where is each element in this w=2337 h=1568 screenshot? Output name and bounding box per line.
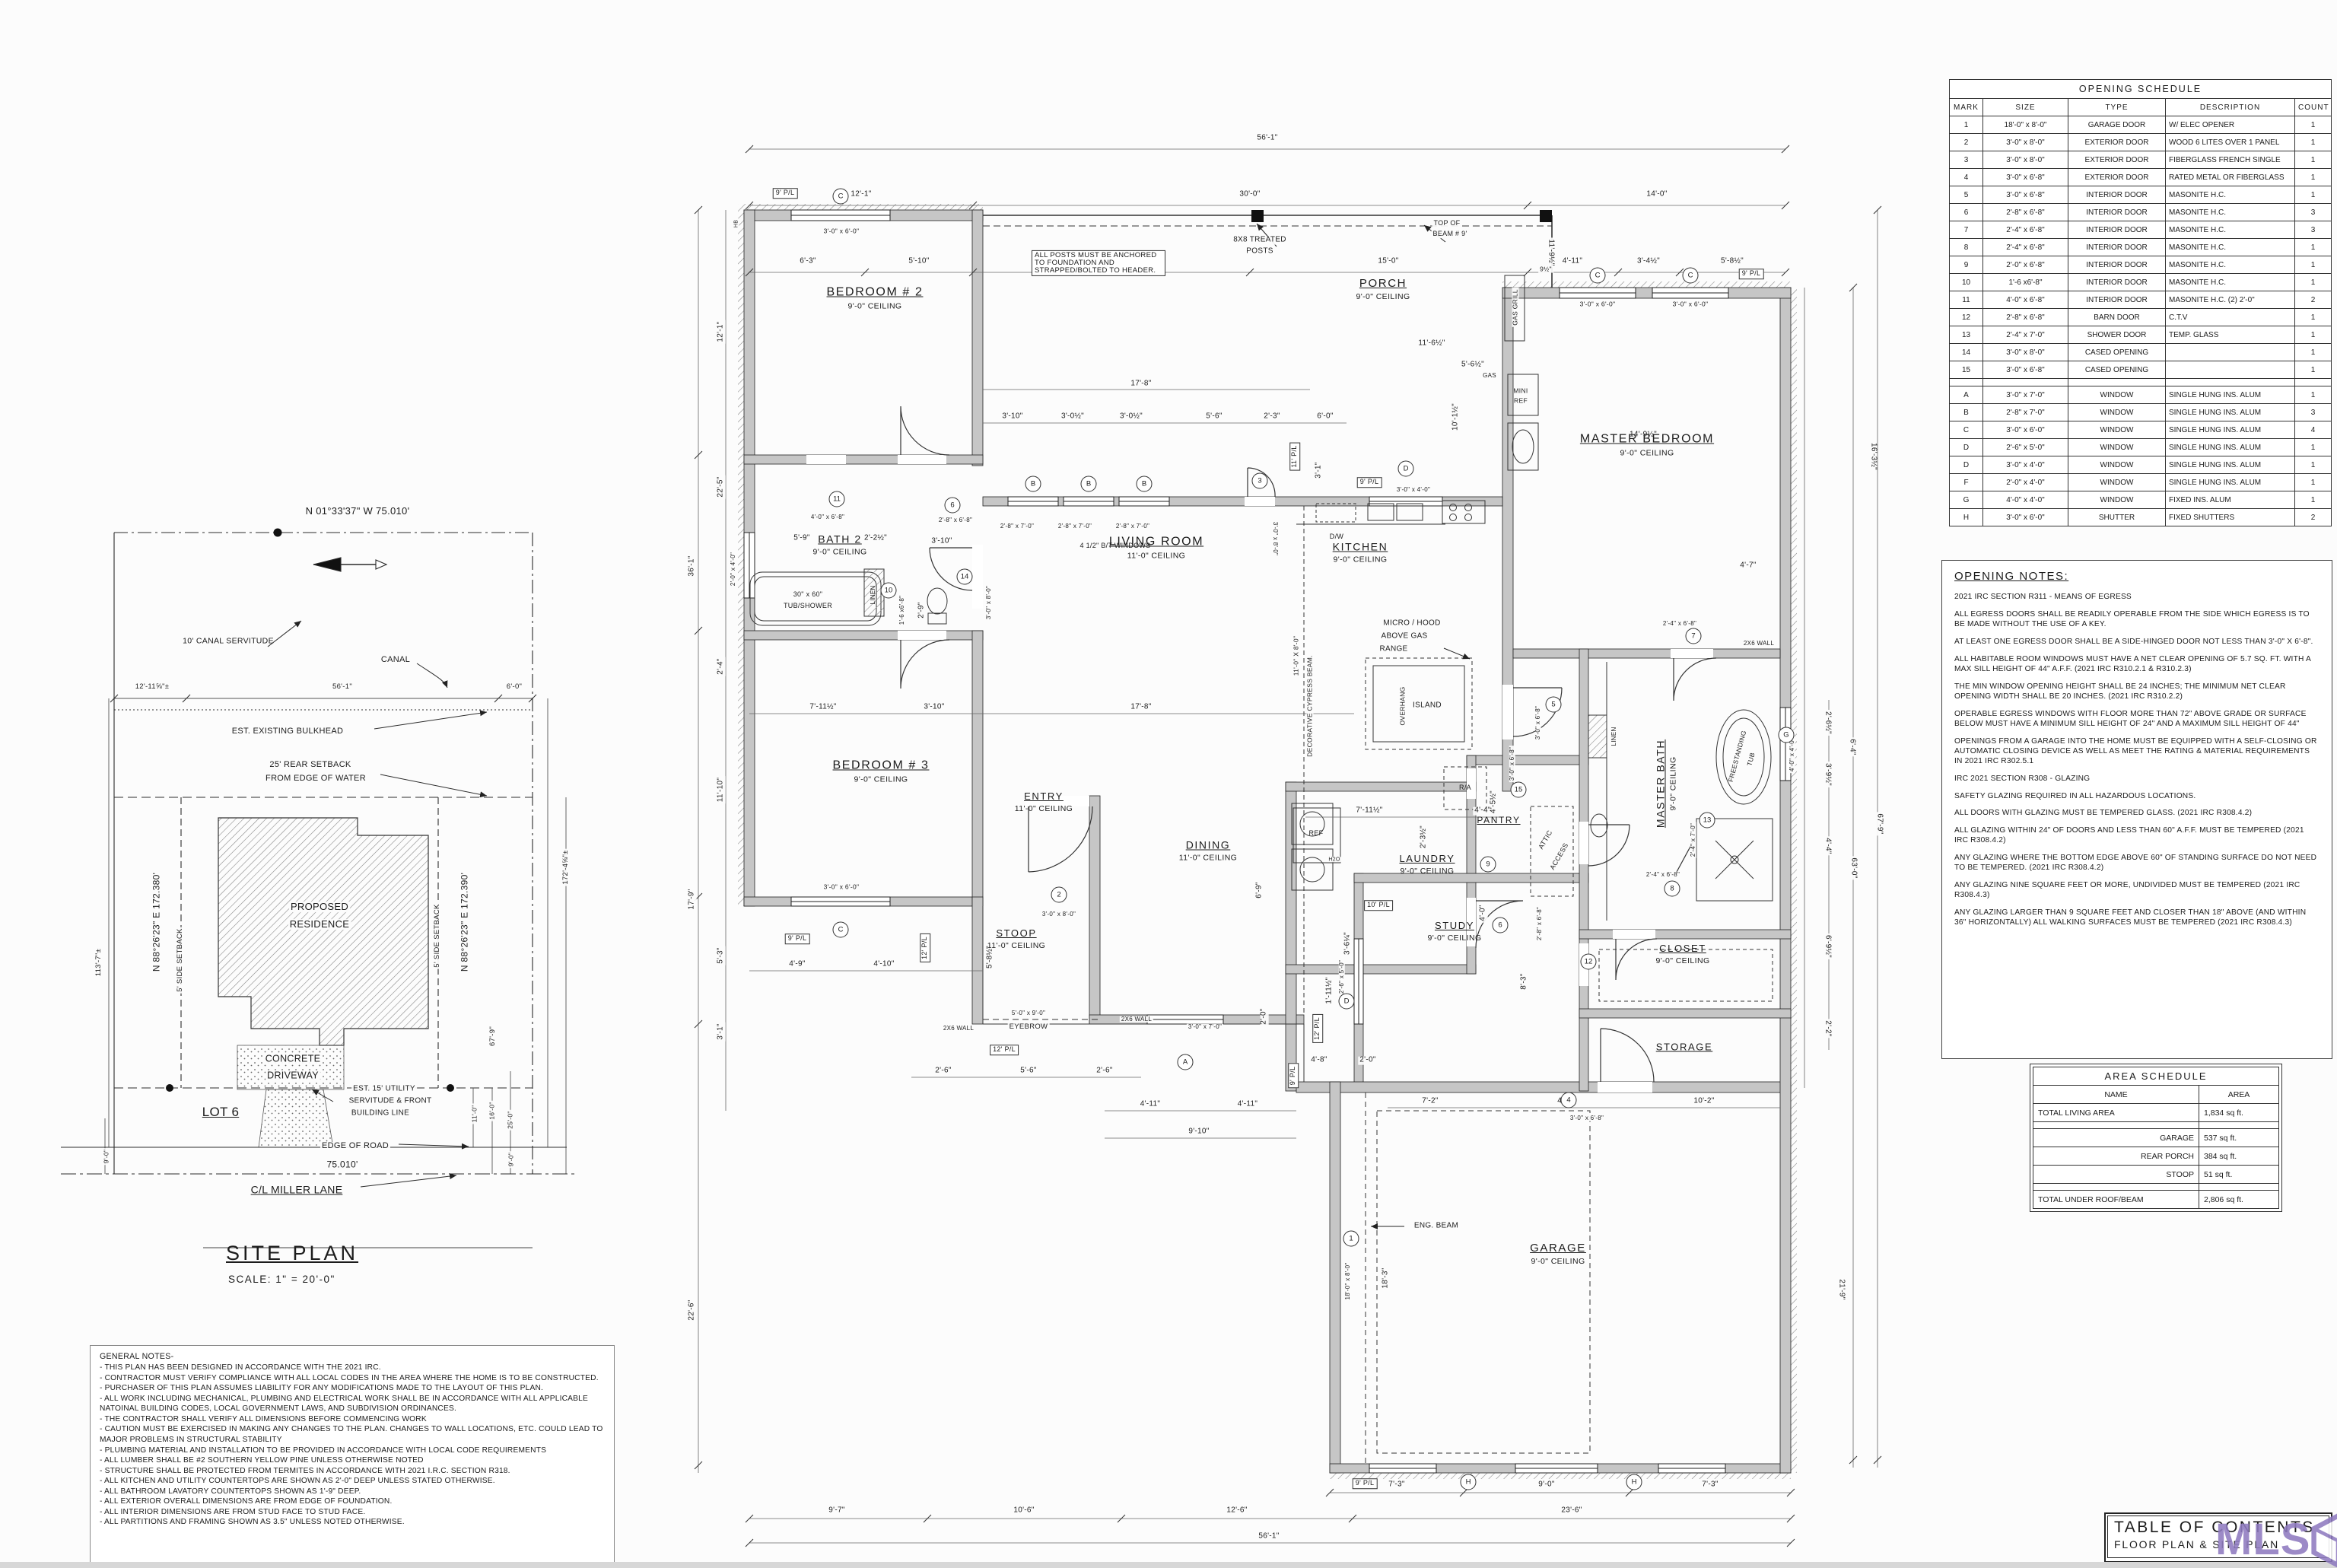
cell-area: 2,806 sq ft. bbox=[2199, 1191, 2279, 1209]
table-row: REAR PORCH384 sq ft. bbox=[2033, 1147, 2279, 1166]
cell-mark: D bbox=[1950, 456, 1983, 474]
general-note: - ALL INTERIOR DIMENSIONS ARE FROM STUD … bbox=[100, 1507, 605, 1518]
table-row: 53'-0" x 6'-8"INTERIOR DOORMASONITE H.C.… bbox=[1950, 186, 2332, 204]
mls-watermark-text: MLS bbox=[2215, 1518, 2310, 1562]
cell-type: CASED OPENING bbox=[2068, 361, 2166, 379]
opening-note: ALL DOORS WITH GLAZING MUST BE TEMPERED … bbox=[1954, 808, 2320, 818]
cell-mark: 8 bbox=[1950, 239, 1983, 256]
opening-notes-body: 2021 IRC SECTION R311 - MEANS OF EGRESSA… bbox=[1954, 592, 2320, 928]
table-row bbox=[1950, 379, 2332, 386]
cell-mark: 12 bbox=[1950, 309, 1983, 326]
opening-note: 2021 IRC SECTION R311 - MEANS OF EGRESS bbox=[1954, 592, 2320, 602]
cell-count: 1 bbox=[2295, 309, 2332, 326]
table-row: 33'-0" x 8'-0"EXTERIOR DOORFIBERGLASS FR… bbox=[1950, 151, 2332, 169]
cell-count: 1 bbox=[2295, 134, 2332, 151]
cell-area: 51 sq ft. bbox=[2199, 1166, 2279, 1184]
table-row: D2'-6" x 5'-0"WINDOWSINGLE HUNG INS. ALU… bbox=[1950, 439, 2332, 456]
cell-mark: F bbox=[1950, 474, 1983, 491]
cell-desc: SINGLE HUNG INS. ALUM bbox=[2166, 474, 2295, 491]
table-row: GARAGE537 sq ft. bbox=[2033, 1129, 2279, 1147]
cell-mark: 13 bbox=[1950, 326, 1983, 344]
opening-note: ALL EGRESS DOORS SHALL BE READILY OPERAB… bbox=[1954, 609, 2320, 630]
cell-size: 3'-0" x 6'-8" bbox=[1983, 169, 2068, 186]
cell-type: CASED OPENING bbox=[2068, 344, 2166, 361]
cell-type: INTERIOR DOOR bbox=[2068, 186, 2166, 204]
cell-size: 2'-8" x 6'-8" bbox=[1983, 204, 2068, 221]
cell-name: TOTAL UNDER ROOF/BEAM bbox=[2033, 1191, 2199, 1209]
cell-desc: SINGLE HUNG INS. ALUM bbox=[2166, 421, 2295, 439]
general-note: - ALL LUMBER SHALL BE #2 SOUTHERN YELLOW… bbox=[100, 1455, 605, 1466]
cell-count: 1 bbox=[2295, 491, 2332, 509]
cell-mark: A bbox=[1950, 386, 1983, 404]
table-row: 132'-4" x 7'-0"SHOWER DOORTEMP. GLASS1 bbox=[1950, 326, 2332, 344]
cell-desc: WOOD 6 LITES OVER 1 PANEL bbox=[2166, 134, 2295, 151]
cell-type: WINDOW bbox=[2068, 439, 2166, 456]
opening-schedule-table: OPENING SCHEDULE MARK SIZE TYPE DESCRIPT… bbox=[1949, 79, 2332, 526]
opening-schedule-title: OPENING SCHEDULE bbox=[1950, 80, 2332, 99]
cell-count: 3 bbox=[2295, 221, 2332, 239]
col-size: SIZE bbox=[1983, 99, 2068, 116]
cell-type: INTERIOR DOOR bbox=[2068, 204, 2166, 221]
table-row bbox=[2033, 1122, 2279, 1129]
cell-size: 4'-0" x 4'-0" bbox=[1983, 491, 2068, 509]
area-schedule-title: AREA SCHEDULE bbox=[2033, 1067, 2279, 1086]
cell-size bbox=[1983, 379, 2068, 386]
cell-name: REAR PORCH bbox=[2033, 1147, 2199, 1166]
cell-count: 3 bbox=[2295, 404, 2332, 421]
cell-desc: SINGLE HUNG INS. ALUM bbox=[2166, 404, 2295, 421]
cell-mark: 9 bbox=[1950, 256, 1983, 274]
cell-size: 3'-0" x 8'-0" bbox=[1983, 134, 2068, 151]
cell-size: 2'-4" x 6'-8" bbox=[1983, 239, 2068, 256]
cell-mark: 10 bbox=[1950, 274, 1983, 291]
cell-name: TOTAL LIVING AREA bbox=[2033, 1104, 2199, 1122]
cell-mark: H bbox=[1950, 509, 1983, 526]
cell-count: 1 bbox=[2295, 151, 2332, 169]
table-row: 114'-0" x 6'-8"INTERIOR DOORMASONITE H.C… bbox=[1950, 291, 2332, 309]
site-plan-title: SITE PLAN bbox=[226, 1242, 358, 1265]
cell-type: WINDOW bbox=[2068, 491, 2166, 509]
table-row: 153'-0" x 6'-8"CASED OPENING1 bbox=[1950, 361, 2332, 379]
col-type: TYPE bbox=[2068, 99, 2166, 116]
table-row: 101'-6 x6'-8"INTERIOR DOORMASONITE H.C.1 bbox=[1950, 274, 2332, 291]
cell-count: 3 bbox=[2295, 204, 2332, 221]
cell-count: 1 bbox=[2295, 169, 2332, 186]
col-area: AREA bbox=[2199, 1086, 2279, 1104]
cell-desc: MASONITE H.C. (2) 2'-0" bbox=[2166, 291, 2295, 309]
cell-area: 384 sq ft. bbox=[2199, 1147, 2279, 1166]
cell-desc: FIXED INS. ALUM bbox=[2166, 491, 2295, 509]
cell-type: SHUTTER bbox=[2068, 509, 2166, 526]
general-note: - THIS PLAN HAS BEEN DESIGNED IN ACCORDA… bbox=[100, 1363, 605, 1373]
table-row: H3'-0" x 6'-0"SHUTTERFIXED SHUTTERS2 bbox=[1950, 509, 2332, 526]
table-row: D3'-0" x 4'-0"WINDOWSINGLE HUNG INS. ALU… bbox=[1950, 456, 2332, 474]
cell-size: 2'-0" x 4'-0" bbox=[1983, 474, 2068, 491]
general-note: - PURCHASER OF THIS PLAN ASSUMES LIABILI… bbox=[100, 1383, 605, 1394]
general-notes: GENERAL NOTES- - THIS PLAN HAS BEEN DESI… bbox=[90, 1345, 615, 1564]
table-row: 122'-8" x 6'-8"BARN DOORC.T.V1 bbox=[1950, 309, 2332, 326]
cell-area: 537 sq ft. bbox=[2199, 1129, 2279, 1147]
fixtures bbox=[750, 275, 1773, 1464]
table-row: 92'-0" x 6'-8"INTERIOR DOORMASONITE H.C.… bbox=[1950, 256, 2332, 274]
col-description: DESCRIPTION bbox=[2166, 99, 2295, 116]
cell-mark: 3 bbox=[1950, 151, 1983, 169]
mls-watermark-logo: MLS bbox=[2215, 1512, 2337, 1567]
cell-size: 3'-0" x 8'-0" bbox=[1983, 151, 2068, 169]
cell-desc bbox=[2166, 379, 2295, 386]
col-name: NAME bbox=[2033, 1086, 2199, 1104]
cell-type: WINDOW bbox=[2068, 404, 2166, 421]
cell-type: WINDOW bbox=[2068, 474, 2166, 491]
table-row: G4'-0" x 4'-0"WINDOWFIXED INS. ALUM1 bbox=[1950, 491, 2332, 509]
cell-type: INTERIOR DOOR bbox=[2068, 221, 2166, 239]
cell-size: 3'-0" x 6'-8" bbox=[1983, 361, 2068, 379]
cell-desc: MASONITE H.C. bbox=[2166, 221, 2295, 239]
cell-desc: MASONITE H.C. bbox=[2166, 256, 2295, 274]
cell-area bbox=[2199, 1122, 2279, 1129]
cell-desc: MASONITE H.C. bbox=[2166, 186, 2295, 204]
cell-area bbox=[2199, 1184, 2279, 1191]
sheet: { "opening_schedule": { "title": "OPENIN… bbox=[0, 0, 2337, 1568]
cell-count: 1 bbox=[2295, 239, 2332, 256]
general-note: - ALL EXTERIOR OVERALL DIMENSIONS ARE FR… bbox=[100, 1496, 605, 1507]
cell-type: GARAGE DOOR bbox=[2068, 116, 2166, 134]
cell-desc: FIXED SHUTTERS bbox=[2166, 509, 2295, 526]
cell-name: GARAGE bbox=[2033, 1129, 2199, 1147]
table-row: 143'-0" x 8'-0"CASED OPENING1 bbox=[1950, 344, 2332, 361]
cell-type: WINDOW bbox=[2068, 386, 2166, 404]
cell-count: 1 bbox=[2295, 256, 2332, 274]
area-schedule-header-row: NAME AREA bbox=[2033, 1086, 2279, 1104]
general-note: - PLUMBING MATERIAL AND INSTALLATION TO … bbox=[100, 1446, 605, 1456]
cell-mark: G bbox=[1950, 491, 1983, 509]
area-schedule: AREA SCHEDULE NAME AREA TOTAL LIVING ARE… bbox=[2030, 1064, 2282, 1212]
cell-desc: TEMP. GLASS bbox=[2166, 326, 2295, 344]
cell-mark bbox=[1950, 379, 1983, 386]
table-row: 43'-0" x 6'-8"EXTERIOR DOORRATED METAL O… bbox=[1950, 169, 2332, 186]
cell-type: INTERIOR DOOR bbox=[2068, 256, 2166, 274]
cell-count: 1 bbox=[2295, 116, 2332, 134]
general-notes-title: GENERAL NOTES- bbox=[100, 1352, 605, 1361]
cell-size: 2'-0" x 6'-8" bbox=[1983, 256, 2068, 274]
opening-note: THE MIN WINDOW OPENING HEIGHT SHALL BE 2… bbox=[1954, 682, 2320, 702]
cell-desc: SINGLE HUNG INS. ALUM bbox=[2166, 439, 2295, 456]
general-note: - ALL WORK INCLUDING MECHANICAL, PLUMBIN… bbox=[100, 1394, 605, 1414]
table-row: B2'-8" x 7'-0"WINDOWSINGLE HUNG INS. ALU… bbox=[1950, 404, 2332, 421]
cell-size: 2'-6" x 5'-0" bbox=[1983, 439, 2068, 456]
cell-name bbox=[2033, 1122, 2199, 1129]
cell-mark: B bbox=[1950, 404, 1983, 421]
cell-mark: 7 bbox=[1950, 221, 1983, 239]
opening-note: ALL HABITABLE ROOM WINDOWS MUST HAVE A N… bbox=[1954, 654, 2320, 675]
cell-mark: 1 bbox=[1950, 116, 1983, 134]
cell-type: WINDOW bbox=[2068, 456, 2166, 474]
cell-type: EXTERIOR DOOR bbox=[2068, 169, 2166, 186]
cell-size: 2'-8" x 6'-8" bbox=[1983, 309, 2068, 326]
cell-desc: W/ ELEC OPENER bbox=[2166, 116, 2295, 134]
cell-size: 3'-0" x 6'-0" bbox=[1983, 421, 2068, 439]
cell-count: 1 bbox=[2295, 474, 2332, 491]
cell-desc: RATED METAL OR FIBERGLASS bbox=[2166, 169, 2295, 186]
cell-desc: FIBERGLASS FRENCH SINGLE bbox=[2166, 151, 2295, 169]
cell-type bbox=[2068, 379, 2166, 386]
cell-size: 18'-0" x 8'-0" bbox=[1983, 116, 2068, 134]
table-row: F2'-0" x 4'-0"WINDOWSINGLE HUNG INS. ALU… bbox=[1950, 474, 2332, 491]
north-arrow-icon bbox=[313, 558, 386, 571]
opening-note: OPERABLE EGRESS WINDOWS WITH FLOOR MORE … bbox=[1954, 709, 2320, 730]
cell-count bbox=[2295, 379, 2332, 386]
cell-desc: SINGLE HUNG INS. ALUM bbox=[2166, 456, 2295, 474]
table-row: C3'-0" x 6'-0"WINDOWSINGLE HUNG INS. ALU… bbox=[1950, 421, 2332, 439]
cell-count: 1 bbox=[2295, 326, 2332, 344]
cell-desc: C.T.V bbox=[2166, 309, 2295, 326]
cell-size: 3'-0" x 6'-8" bbox=[1983, 186, 2068, 204]
cell-count: 1 bbox=[2295, 456, 2332, 474]
general-note: - CAUTION MUST BE EXERCISED IN MAKING AN… bbox=[100, 1424, 605, 1445]
table-row: 82'-4" x 6'-8"INTERIOR DOORMASONITE H.C.… bbox=[1950, 239, 2332, 256]
opening-schedule-header-row: MARK SIZE TYPE DESCRIPTION COUNT bbox=[1950, 99, 2332, 116]
table-row: 72'-4" x 6'-8"INTERIOR DOORMASONITE H.C.… bbox=[1950, 221, 2332, 239]
general-note: - ALL PARTITIONS AND FRAMING SHOWN AS 3.… bbox=[100, 1517, 605, 1528]
cell-mark: 5 bbox=[1950, 186, 1983, 204]
general-note: - STRUCTURE SHALL BE PROTECTED FROM TERM… bbox=[100, 1466, 605, 1477]
cell-desc: MASONITE H.C. bbox=[2166, 274, 2295, 291]
cell-count: 2 bbox=[2295, 291, 2332, 309]
opening-notes: OPENING NOTES: 2021 IRC SECTION R311 - M… bbox=[1941, 560, 2332, 1059]
opening-note: ANY GLAZING NINE SQUARE FEET OR MORE, UN… bbox=[1954, 880, 2320, 901]
cell-size: 3'-0" x 6'-0" bbox=[1983, 509, 2068, 526]
cell-count: 1 bbox=[2295, 274, 2332, 291]
site-plan-scale: SCALE: 1" = 20'-0" bbox=[228, 1274, 335, 1285]
cell-mark: 14 bbox=[1950, 344, 1983, 361]
cell-type: INTERIOR DOOR bbox=[2068, 239, 2166, 256]
mls-cube-icon bbox=[2310, 1512, 2337, 1567]
cell-count: 1 bbox=[2295, 186, 2332, 204]
opening-note: ANY GLAZING WHERE THE BOTTOM EDGE ABOVE … bbox=[1954, 853, 2320, 873]
cell-mark: 11 bbox=[1950, 291, 1983, 309]
site-plan-geometry bbox=[61, 529, 578, 1248]
door-openings bbox=[806, 455, 1713, 1093]
col-mark: MARK bbox=[1950, 99, 1983, 116]
cell-desc: SINGLE HUNG INS. ALUM bbox=[2166, 386, 2295, 404]
general-note: - CONTRACTOR MUST VERIFY COMPLIANCE WITH… bbox=[100, 1373, 605, 1384]
opening-note: ANY GLAZING LARGER THAN 9 SQUARE FEET AN… bbox=[1954, 908, 2320, 928]
general-notes-body: - THIS PLAN HAS BEEN DESIGNED IN ACCORDA… bbox=[100, 1363, 605, 1528]
windows bbox=[744, 210, 1791, 1473]
floor-plan-walls bbox=[738, 204, 1797, 1479]
general-note: - ALL BATHROOM LAVATORY COUNTERTOPS SHOW… bbox=[100, 1487, 605, 1497]
cell-desc bbox=[2166, 361, 2295, 379]
cell-type: EXTERIOR DOOR bbox=[2068, 151, 2166, 169]
cell-size: 3'-0" x 8'-0" bbox=[1983, 344, 2068, 361]
table-row: TOTAL UNDER ROOF/BEAM2,806 sq ft. bbox=[2033, 1191, 2279, 1209]
cell-type: BARN DOOR bbox=[2068, 309, 2166, 326]
cell-size: 2'-4" x 7'-0" bbox=[1983, 326, 2068, 344]
table-row: 62'-8" x 6'-8"INTERIOR DOORMASONITE H.C.… bbox=[1950, 204, 2332, 221]
cell-count: 2 bbox=[2295, 509, 2332, 526]
page-bottom-edge bbox=[0, 1562, 2337, 1568]
cell-size: 4'-0" x 6'-8" bbox=[1983, 291, 2068, 309]
cell-size: 1'-6 x6'-8" bbox=[1983, 274, 2068, 291]
cell-mark: 6 bbox=[1950, 204, 1983, 221]
cell-desc: MASONITE H.C. bbox=[2166, 239, 2295, 256]
cell-type: INTERIOR DOOR bbox=[2068, 274, 2166, 291]
general-note: - ALL KITCHEN AND UTILITY COUNTERTOPS AR… bbox=[100, 1476, 605, 1487]
cell-desc bbox=[2166, 344, 2295, 361]
opening-note: AT LEAST ONE EGRESS DOOR SHALL BE A SIDE… bbox=[1954, 637, 2320, 647]
cell-count: 1 bbox=[2295, 344, 2332, 361]
opening-note: SAFETY GLAZING REQUIRED IN ALL HAZARDOUS… bbox=[1954, 791, 2320, 801]
cell-type: WINDOW bbox=[2068, 421, 2166, 439]
cell-size: 2'-4" x 6'-8" bbox=[1983, 221, 2068, 239]
general-note: - THE CONTRACTOR SHALL VERIFY ALL DIMENS… bbox=[100, 1414, 605, 1425]
cell-mark: 2 bbox=[1950, 134, 1983, 151]
cell-type: INTERIOR DOOR bbox=[2068, 291, 2166, 309]
cell-count: 1 bbox=[2295, 361, 2332, 379]
table-row: 23'-0" x 8'-0"EXTERIOR DOORWOOD 6 LITES … bbox=[1950, 134, 2332, 151]
opening-note: IRC 2021 SECTION R308 - GLAZING bbox=[1954, 774, 2320, 784]
table-row: STOOP51 sq ft. bbox=[2033, 1166, 2279, 1184]
table-row: A3'-0" x 7'-0"WINDOWSINGLE HUNG INS. ALU… bbox=[1950, 386, 2332, 404]
col-count: COUNT bbox=[2295, 99, 2332, 116]
cell-count: 1 bbox=[2295, 439, 2332, 456]
cell-mark: 15 bbox=[1950, 361, 1983, 379]
cell-mark: D bbox=[1950, 439, 1983, 456]
opening-note: ALL GLAZING WITHIN 24" OF DOORS AND LESS… bbox=[1954, 825, 2320, 846]
cell-type: EXTERIOR DOOR bbox=[2068, 134, 2166, 151]
table-row: 118'-0" x 8'-0"GARAGE DOORW/ ELEC OPENER… bbox=[1950, 116, 2332, 134]
cell-type: SHOWER DOOR bbox=[2068, 326, 2166, 344]
cell-name: STOOP bbox=[2033, 1166, 2199, 1184]
cell-size: 3'-0" x 7'-0" bbox=[1983, 386, 2068, 404]
cell-name bbox=[2033, 1184, 2199, 1191]
cell-size: 3'-0" x 4'-0" bbox=[1983, 456, 2068, 474]
cell-mark: 4 bbox=[1950, 169, 1983, 186]
table-row: TOTAL LIVING AREA1,834 sq ft. bbox=[2033, 1104, 2279, 1122]
cell-mark: C bbox=[1950, 421, 1983, 439]
cell-desc: MASONITE H.C. bbox=[2166, 204, 2295, 221]
table-row bbox=[2033, 1184, 2279, 1191]
cell-count: 4 bbox=[2295, 421, 2332, 439]
cell-count: 1 bbox=[2295, 386, 2332, 404]
cell-size: 2'-8" x 7'-0" bbox=[1983, 404, 2068, 421]
opening-note: OPENINGS FROM A GARAGE INTO THE HOME MUS… bbox=[1954, 736, 2320, 767]
cell-area: 1,834 sq ft. bbox=[2199, 1104, 2279, 1122]
opening-notes-title: OPENING NOTES: bbox=[1954, 570, 2320, 583]
